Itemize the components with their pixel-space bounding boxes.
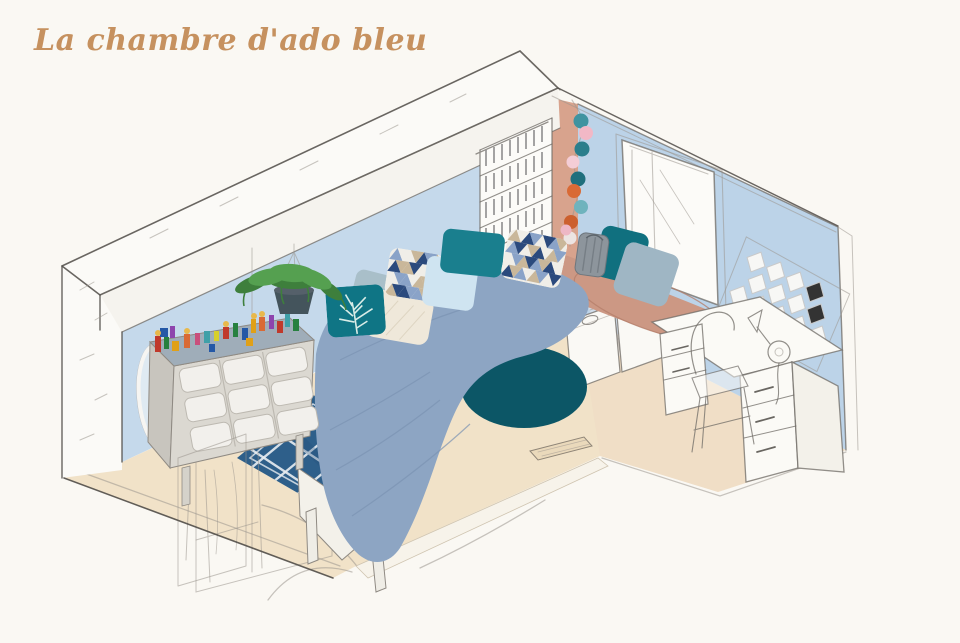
room-illustration: La chambre d'ado bleu <box>0 0 960 643</box>
page-title: La chambre d'ado bleu <box>33 23 427 58</box>
pillow-teal <box>439 228 505 278</box>
desk-drawer-unit <box>740 362 798 482</box>
